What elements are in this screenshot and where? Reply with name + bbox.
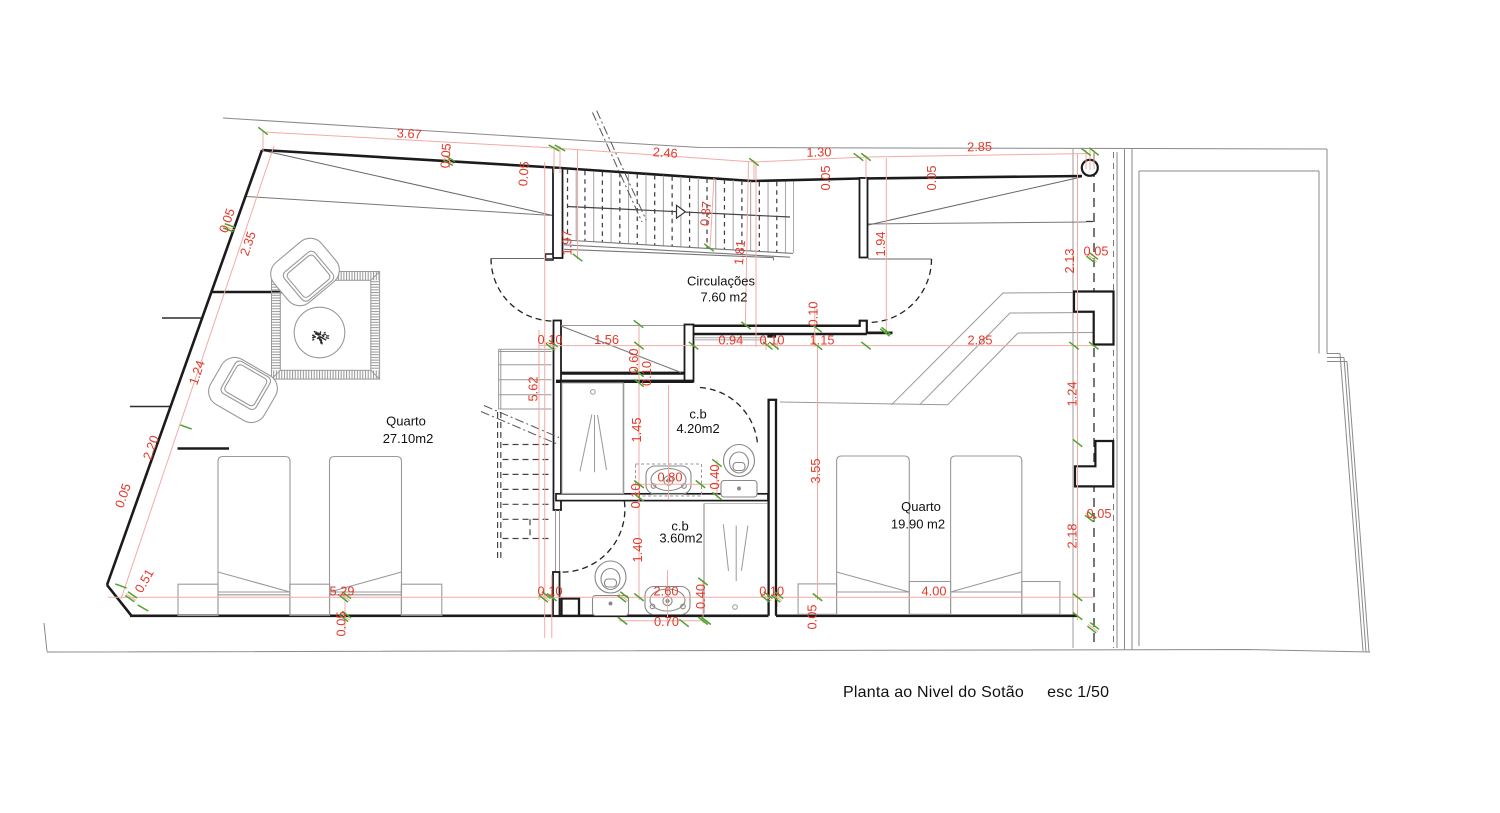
svg-text:1.45: 1.45	[629, 418, 644, 443]
svg-text:0.05: 0.05	[334, 612, 349, 637]
svg-text:0.87: 0.87	[697, 201, 714, 227]
svg-text:0.94: 0.94	[718, 333, 743, 348]
svg-text:0.05: 0.05	[924, 166, 939, 191]
svg-text:3.60m2: 3.60m2	[659, 531, 702, 546]
svg-text:2.85: 2.85	[968, 333, 993, 348]
svg-text:2.13: 2.13	[1062, 249, 1077, 274]
svg-text:0.05: 0.05	[805, 605, 820, 630]
svg-text:0.10: 0.10	[760, 333, 785, 348]
svg-text:Quarto: Quarto	[386, 414, 426, 429]
svg-text:3.55: 3.55	[808, 459, 823, 484]
svg-text:0.10: 0.10	[759, 583, 784, 598]
svg-text:7.60 m2: 7.60 m2	[701, 290, 748, 305]
svg-text:0.10: 0.10	[538, 583, 563, 598]
svg-text:1.24: 1.24	[1065, 382, 1080, 407]
svg-text:27.10m2: 27.10m2	[383, 431, 434, 446]
svg-text:2.18: 2.18	[1065, 524, 1080, 549]
svg-text:c.b: c.b	[689, 407, 706, 422]
svg-text:4.00: 4.00	[922, 583, 947, 598]
svg-text:2.85: 2.85	[967, 139, 992, 155]
svg-text:5.29: 5.29	[330, 583, 355, 598]
svg-text:1.97: 1.97	[560, 231, 575, 256]
svg-text:19.90 m2: 19.90 m2	[891, 517, 945, 532]
svg-text:0.05: 0.05	[437, 143, 454, 169]
svg-text:Quarto: Quarto	[901, 499, 941, 514]
svg-text:1.30: 1.30	[806, 144, 831, 159]
svg-text:0.05: 0.05	[1087, 506, 1112, 521]
svg-text:2.60: 2.60	[654, 583, 679, 598]
svg-text:0.10: 0.10	[639, 361, 654, 386]
svg-text:1.94: 1.94	[873, 232, 888, 257]
svg-text:2.46: 2.46	[652, 144, 678, 161]
svg-text:0.10: 0.10	[538, 332, 563, 347]
svg-text:1.56: 1.56	[594, 332, 619, 347]
svg-text:0.05: 0.05	[818, 166, 833, 191]
svg-text:Planta ao Nivel do Sotão e: Planta ao Nivel do Sotão esc 1/50	[843, 684, 1109, 701]
svg-text:3.67: 3.67	[396, 125, 422, 141]
svg-text:Circulações: Circulações	[687, 274, 755, 289]
svg-text:1.81: 1.81	[731, 240, 748, 266]
svg-text:1.15: 1.15	[810, 333, 835, 348]
svg-text:0.10: 0.10	[806, 302, 821, 327]
svg-text:5.62: 5.62	[526, 377, 541, 402]
svg-text:0.80: 0.80	[658, 470, 683, 485]
svg-text:1.40: 1.40	[630, 538, 645, 563]
svg-text:0.10: 0.10	[628, 484, 643, 509]
svg-text:4.20m2: 4.20m2	[676, 421, 719, 436]
svg-text:0.70: 0.70	[654, 614, 679, 629]
svg-text:0.05: 0.05	[515, 161, 532, 187]
svg-text:0.40: 0.40	[693, 584, 708, 609]
svg-text:0.05: 0.05	[1084, 244, 1109, 259]
svg-text:0.40: 0.40	[707, 465, 722, 490]
